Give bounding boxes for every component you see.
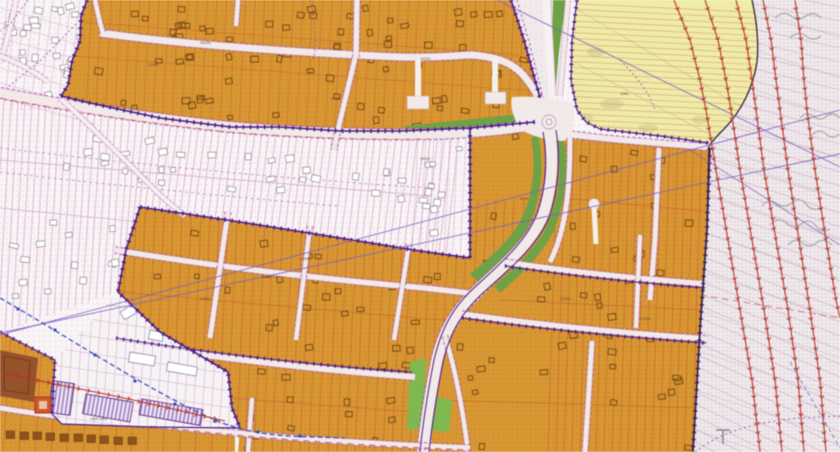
svg-text:UMN.MW: UMN.MW — [90, 416, 108, 421]
svg-text:2MN: 2MN — [620, 91, 629, 96]
svg-text:12MN: 12MN — [640, 316, 651, 321]
svg-text:2KDD: 2KDD — [420, 156, 431, 161]
svg-text:5MN: 5MN — [520, 196, 529, 201]
svg-text:22MN: 22MN — [300, 256, 311, 261]
svg-text:1KDD: 1KDD — [420, 56, 431, 61]
svg-text:12MN: 12MN — [148, 62, 159, 67]
svg-text:23MN: 23MN — [560, 296, 571, 301]
svg-text:SKDD: SKDD — [200, 40, 211, 45]
svg-text:12MN: 12MN — [330, 96, 341, 101]
svg-text:21MN: 21MN — [200, 296, 211, 301]
